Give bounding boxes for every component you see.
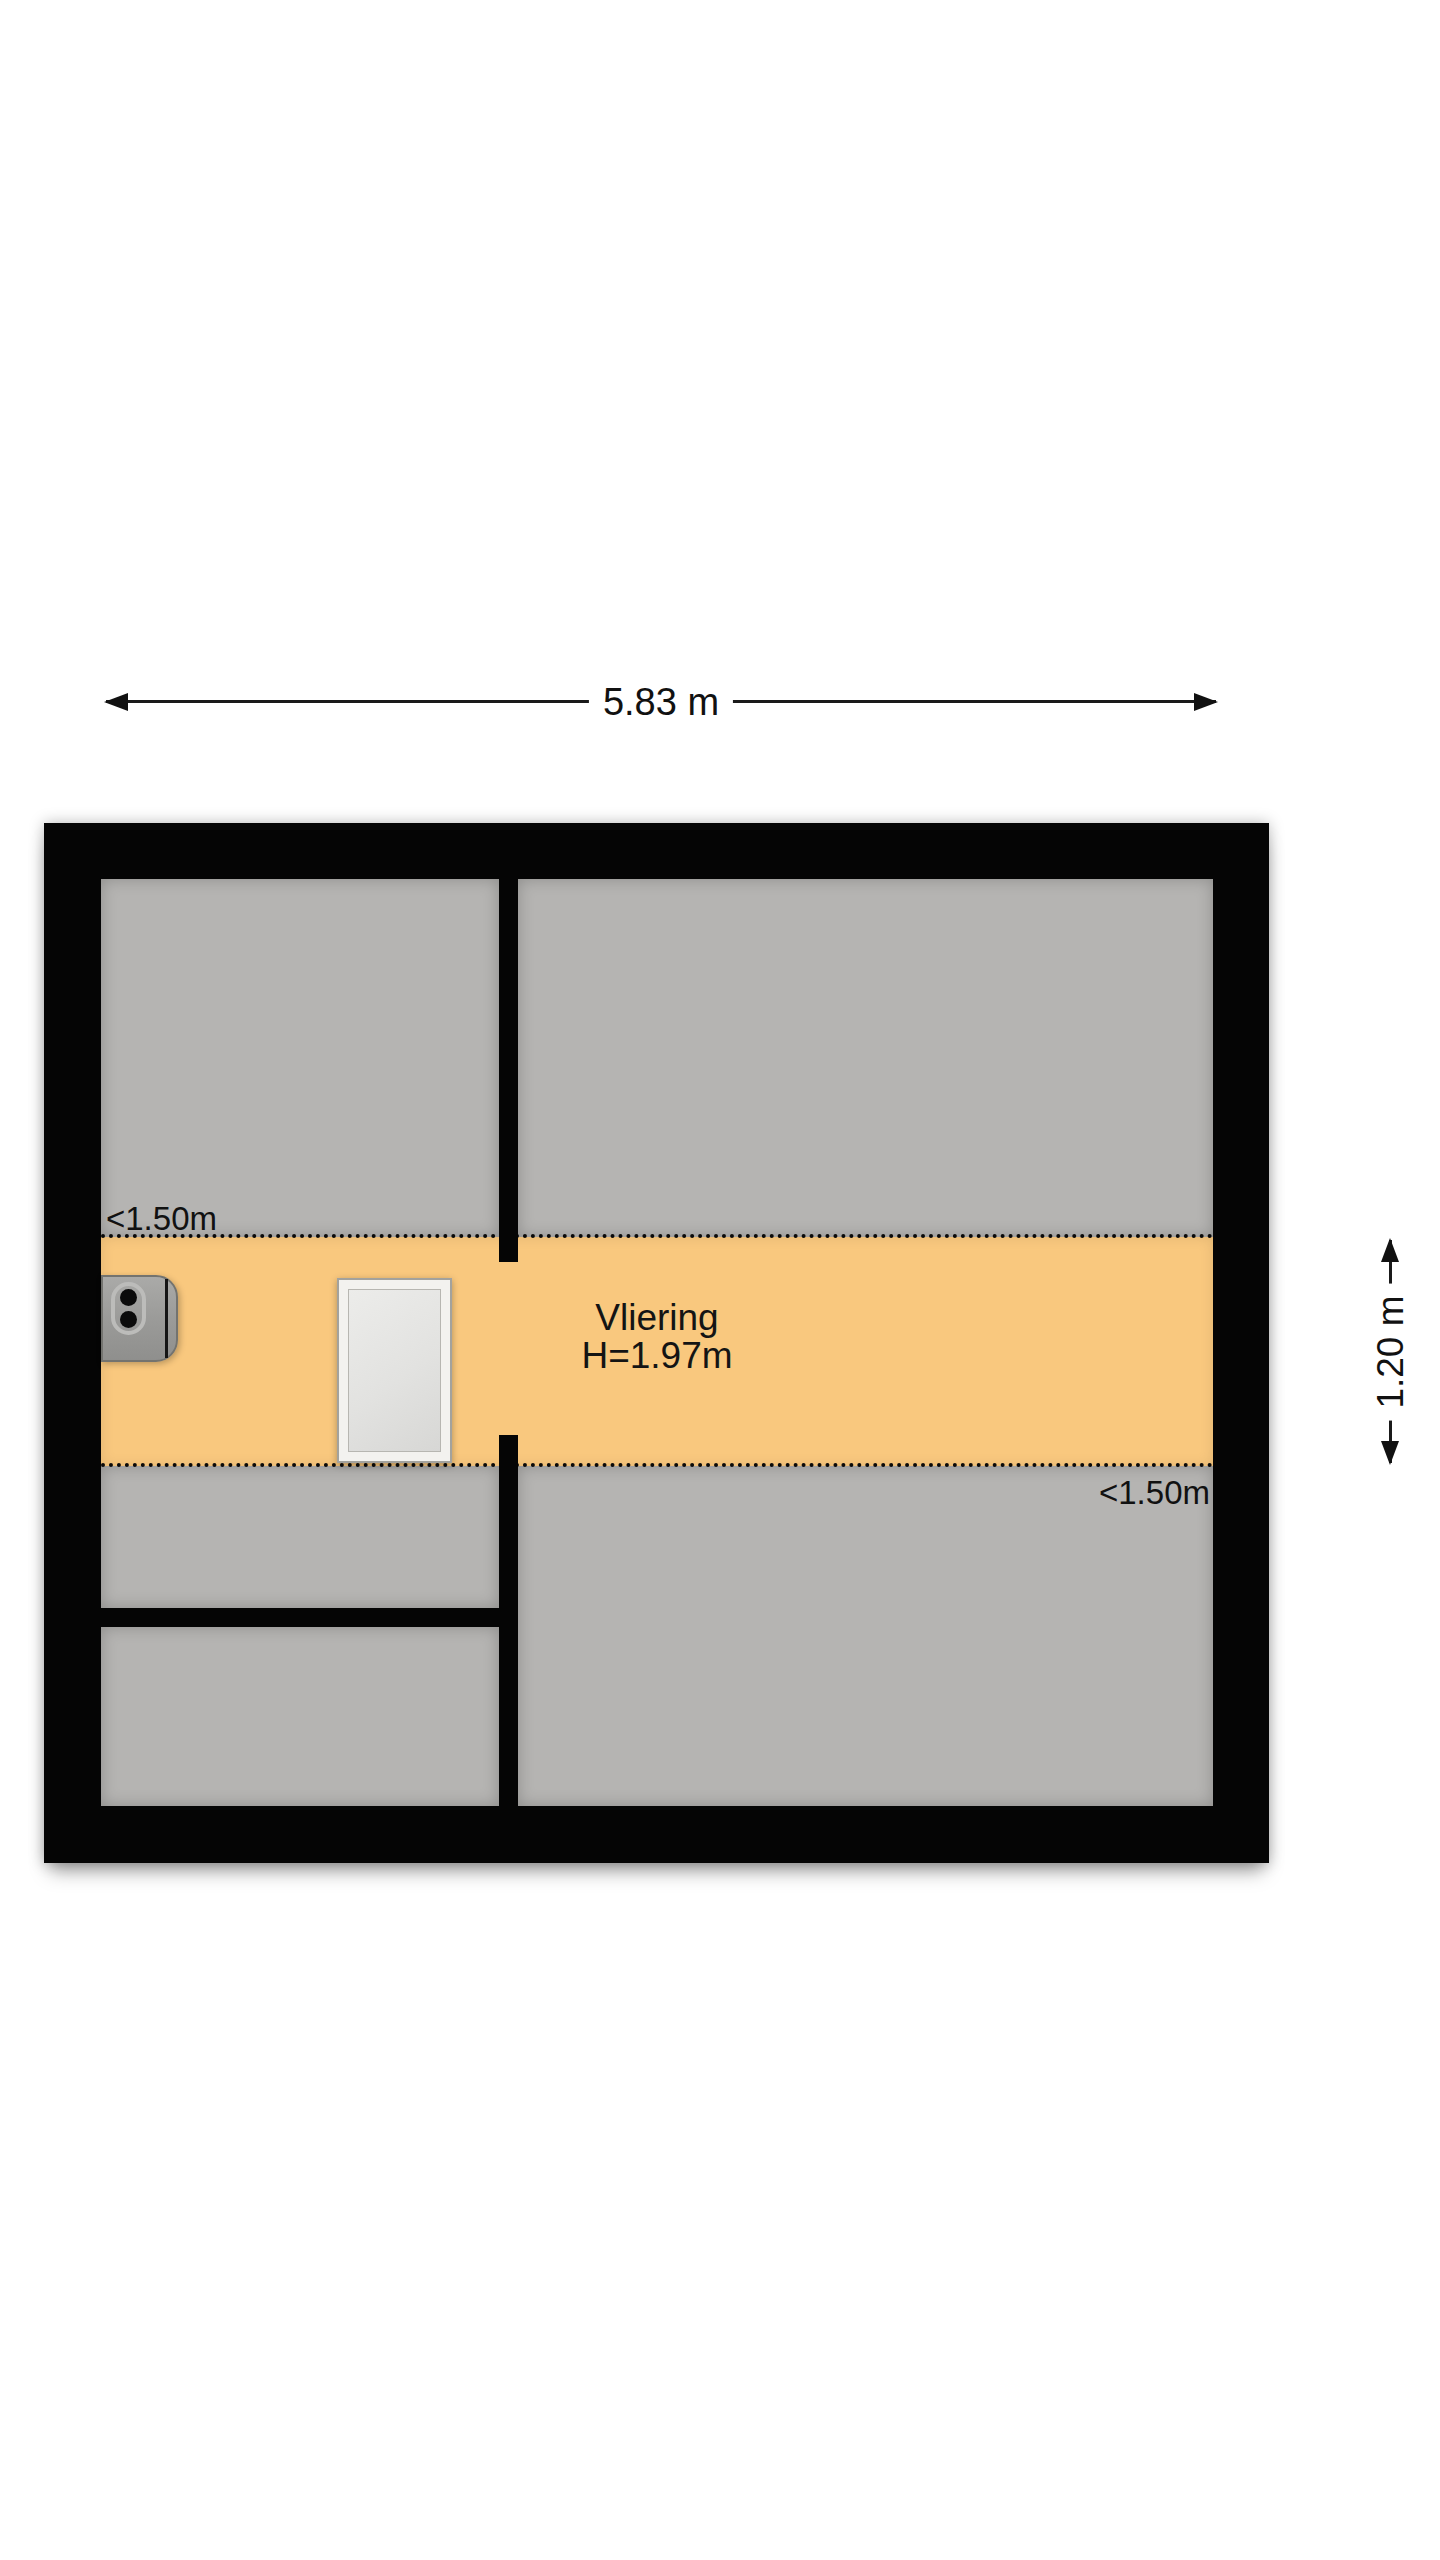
interior-wall-divider-bottom	[499, 1435, 518, 1806]
room-bottom-right	[518, 1466, 1213, 1806]
arrow-down-icon	[1381, 1441, 1399, 1465]
height-marker-top-left: <1.50m	[106, 1200, 217, 1238]
height-marker-bottom-right: <1.50m	[1099, 1474, 1210, 1512]
room-top-left	[101, 879, 499, 1237]
room-label: Vliering H=1.97m	[101, 1299, 1213, 1375]
arrow-left-icon	[104, 693, 128, 711]
dimension-right-depth: 1.20 m	[1376, 1238, 1406, 1465]
arrow-up-icon	[1381, 1238, 1399, 1262]
arrow-right-icon	[1194, 693, 1218, 711]
room-bottom-left-lower	[101, 1627, 499, 1806]
room-name: Vliering	[101, 1299, 1213, 1337]
floorplan-canvas: 5.83 m <1.50m <1.50m Vliering H=1.97m 1.…	[0, 0, 1440, 2560]
height-limit-line-top	[101, 1234, 1213, 1238]
interior-wall-divider-top	[499, 879, 518, 1262]
height-limit-line-bottom	[101, 1463, 1213, 1467]
dimension-right-label: 1.20 m	[1370, 1283, 1412, 1420]
interior-wall-horizontal-left	[101, 1608, 499, 1627]
room-top-right	[518, 879, 1213, 1237]
dimension-top-label: 5.83 m	[589, 681, 733, 724]
room-bottom-left-upper	[101, 1466, 499, 1608]
room-ceiling-height: H=1.97m	[101, 1337, 1213, 1375]
dimension-top-width: 5.83 m	[104, 689, 1218, 715]
